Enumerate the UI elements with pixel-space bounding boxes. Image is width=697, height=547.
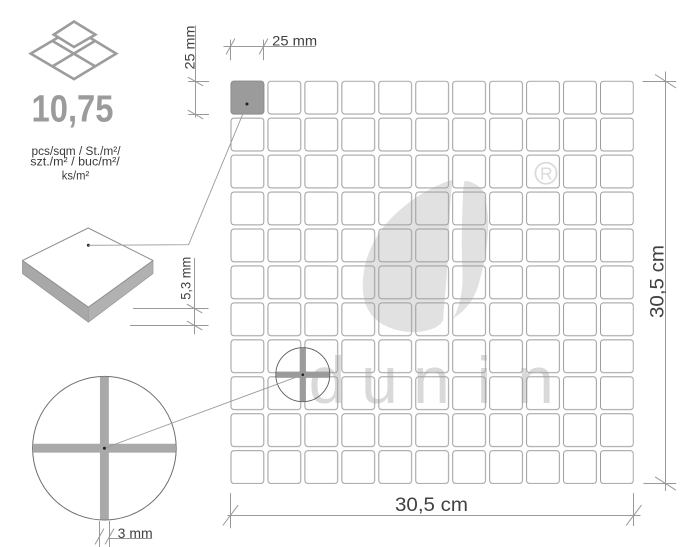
- svg-text:szt./m² / buc/m²/: szt./m² / buc/m²/: [30, 155, 120, 169]
- svg-text:ks/m²: ks/m²: [62, 168, 90, 182]
- svg-text:10,75: 10,75: [32, 88, 114, 130]
- svg-text:5,3 mm: 5,3 mm: [179, 257, 194, 300]
- svg-text:25 mm: 25 mm: [272, 33, 317, 48]
- svg-text:25 mm: 25 mm: [182, 26, 197, 70]
- svg-text:30,5 cm: 30,5 cm: [647, 245, 669, 318]
- svg-text:3 mm: 3 mm: [118, 526, 153, 541]
- svg-text:30,5 cm: 30,5 cm: [395, 494, 468, 516]
